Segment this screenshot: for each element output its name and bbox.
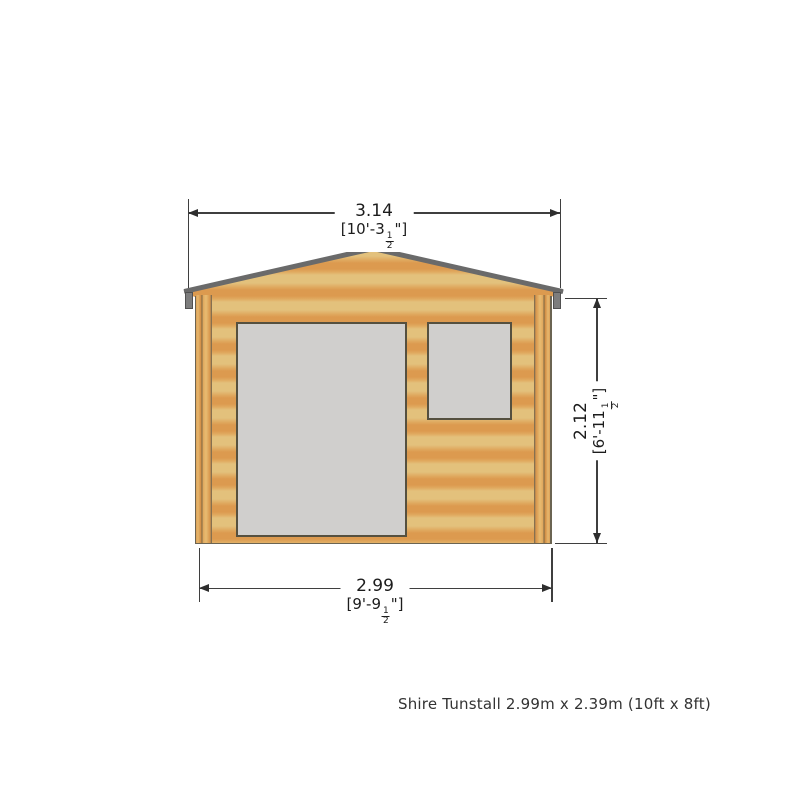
base-width-metric: 2.99 xyxy=(347,577,404,596)
eave-cap-right xyxy=(553,292,561,309)
wall-outline-left xyxy=(195,296,197,544)
wall-height-imperial: [6'-1112"] xyxy=(591,387,622,454)
dimension-label-overall-width: 3.14 [10'-312"] xyxy=(335,202,414,252)
dimension-label-base-width: 2.99 [9'-912"] xyxy=(341,577,410,627)
product-caption: Shire Tunstall 2.99m x 2.39m (10ft x 8ft… xyxy=(398,695,711,713)
shed-elevation xyxy=(184,248,564,548)
wall-height-metric: 2.12 xyxy=(572,387,591,454)
arrowhead-up-icon xyxy=(593,298,601,308)
base-width-imperial: [9'-912"] xyxy=(347,596,404,627)
wall-outline-right xyxy=(550,296,552,544)
shed-door xyxy=(236,322,407,537)
corner-trim-left xyxy=(195,295,212,543)
product-dimension-diagram: 3.14 [10'-312"] 2.12 [6'-1112"] 2.99 [9'… xyxy=(0,0,800,800)
eave-cap-left xyxy=(185,292,193,309)
wall-outline-bottom xyxy=(195,543,552,545)
fraction: 12 xyxy=(386,232,394,252)
extension-line-bottom-left xyxy=(199,548,200,602)
shed-window xyxy=(427,322,512,420)
arrowhead-right-icon xyxy=(550,209,560,217)
extension-line-bottom-right xyxy=(551,548,552,602)
fraction: 12 xyxy=(602,401,622,409)
fraction: 12 xyxy=(382,607,390,627)
dimension-label-wall-height: 2.12 [6'-1112"] xyxy=(572,381,622,460)
arrowhead-down-icon xyxy=(593,533,601,543)
arrowhead-right-icon xyxy=(542,584,552,592)
corner-trim-right xyxy=(534,295,551,543)
arrowhead-left-icon xyxy=(199,584,209,592)
arrowhead-left-icon xyxy=(188,209,198,217)
overall-width-imperial: [10'-312"] xyxy=(341,221,408,252)
overall-width-metric: 3.14 xyxy=(341,202,408,221)
